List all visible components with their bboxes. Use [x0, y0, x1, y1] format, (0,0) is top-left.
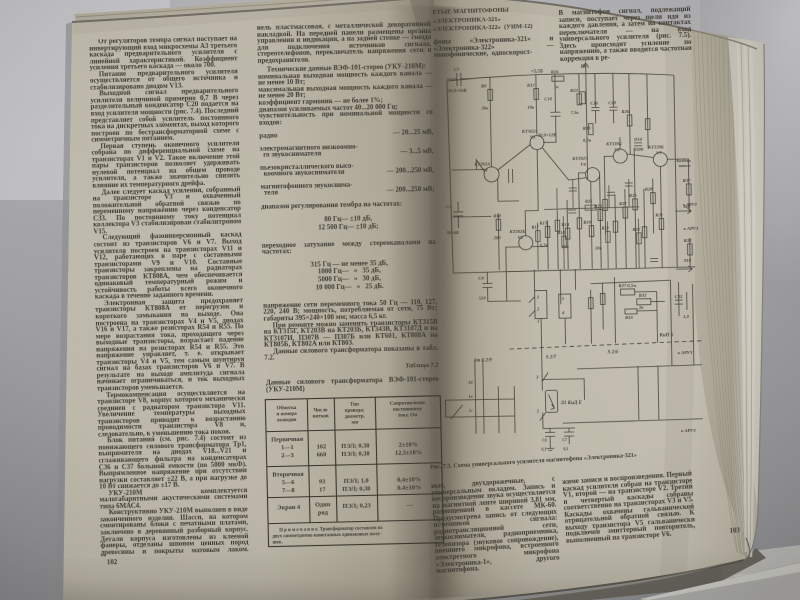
svg-text:С7: С7	[454, 67, 460, 72]
svg-text:2: 2	[536, 307, 540, 312]
svg-text:6,2к: 6,2к	[540, 242, 549, 247]
svg-text:С2: С2	[446, 204, 452, 209]
svg-text:V3: V3	[530, 135, 536, 140]
svg-text:7—8: 7—8	[282, 487, 295, 494]
svg-text:R9: R9	[481, 83, 487, 88]
svg-text:R26: R26	[621, 109, 629, 114]
svg-text:R25: R25	[629, 193, 637, 198]
svg-text:Число: Число	[313, 408, 328, 413]
svg-text:С19: С19	[608, 100, 616, 105]
svg-text:102: 102	[317, 443, 327, 450]
svg-text:ПЭЛ; 1,0: ПЭЛ; 1,0	[344, 477, 369, 485]
svg-text:5: 5	[562, 296, 565, 301]
svg-text:и номера: и номера	[276, 412, 297, 417]
svg-text:С6: С6	[542, 437, 547, 442]
svg-text:Сопротивление: Сопротивление	[390, 401, 426, 407]
svg-text:R16: R16	[551, 69, 559, 74]
svg-text:D10: D10	[633, 137, 643, 142]
svg-text:R20: R20	[594, 203, 602, 208]
svg-text:3300: 3300	[633, 147, 644, 152]
svg-text:к АРУЗ: к АРУЗ	[683, 226, 698, 231]
svg-text:R23: R23	[601, 225, 609, 230]
svg-text:3: 3	[535, 375, 539, 380]
svg-text:0,4±10%: 0,4±10%	[397, 476, 421, 484]
svg-text:0,1: 0,1	[563, 446, 568, 451]
svg-text:0,4±10%: 0,4±10%	[397, 484, 421, 492]
svg-text:V4: V4	[580, 162, 586, 167]
svg-text:93: 93	[319, 478, 325, 485]
svg-text:С7: С7	[562, 437, 568, 442]
svg-text:R32: R32	[639, 293, 647, 298]
svg-text:R17: R17	[531, 225, 539, 230]
svg-text:12,5±10%: 12,5±10%	[395, 449, 422, 457]
svg-text:В6: В6	[580, 65, 587, 70]
svg-text:R28: R28	[645, 187, 653, 192]
svg-text:R38: R38	[684, 238, 692, 243]
svg-text:Экран 4: Экран 4	[277, 504, 301, 512]
svg-text:4: 4	[561, 310, 565, 315]
svg-text:R33: R33	[625, 315, 633, 320]
svg-text:к АРУЗ: к АРУЗ	[678, 350, 693, 355]
svg-text:С22: С22	[675, 294, 683, 299]
svg-text:R19: R19	[583, 220, 591, 225]
svg-text:диаметр,: диаметр,	[345, 414, 366, 419]
svg-text:двух симметрично намотанных од: двух симметрично намотанных одинаковых п…	[272, 532, 382, 539]
svg-text:ПЭЛ; 0,38: ПЭЛ; 0,38	[341, 450, 369, 458]
svg-text:КТ339Б: КТ339Б	[647, 144, 664, 149]
svg-text:S 2/7: S 2/7	[546, 355, 557, 360]
svg-text:8,2к: 8,2к	[583, 138, 592, 143]
svg-text:провода;: провода;	[345, 408, 365, 413]
svg-text:R18: R18	[558, 230, 566, 235]
svg-text:ряд: ряд	[318, 509, 329, 516]
svg-text:шек.: шек.	[272, 540, 282, 545]
svg-text:R14: R14	[561, 222, 569, 227]
svg-text:R25: R25	[585, 199, 593, 204]
svg-text:3: 3	[536, 295, 540, 300]
svg-text:18к: 18к	[527, 105, 535, 110]
svg-text:КиП 6: КиП 6	[658, 333, 673, 338]
svg-text:1,0: 1,0	[683, 314, 690, 319]
svg-text:току, Ом: току, Ом	[398, 413, 418, 418]
svg-text:2к: 2к	[638, 305, 644, 310]
svg-text:Один: Один	[315, 501, 331, 508]
svg-text:С10: С10	[544, 96, 552, 101]
svg-text:V5: V5	[614, 147, 620, 152]
svg-text:к АРУЗ: к АРУЗ	[681, 428, 696, 433]
svg-text:30к: 30к	[480, 105, 489, 110]
svg-text:КТ302Б: КТ302Б	[509, 229, 526, 234]
svg-text:R22: R22	[570, 88, 578, 93]
svg-text:50×6Б: 50×6Б	[447, 230, 460, 235]
svg-text:V1: V1	[482, 167, 487, 172]
svg-text:Тип: Тип	[350, 403, 359, 408]
svg-text:витков: витков	[313, 414, 329, 419]
svg-text:ПЭЛ; 0,23: ПЭЛ; 0,23	[343, 502, 371, 510]
svg-text:20,0×12В: 20,0×12В	[537, 132, 556, 137]
svg-text:1: 1	[537, 319, 539, 324]
svg-text:мм: мм	[351, 421, 359, 426]
svg-text:R21: R21	[619, 201, 627, 206]
svg-text:R27 0,5м: R27 0,5м	[618, 283, 636, 288]
svg-text:R31: R31	[655, 212, 663, 217]
svg-text:Вторичная: Вторичная	[272, 471, 304, 479]
svg-text:910: 910	[684, 258, 692, 263]
svg-text:7,5к: 7,5к	[570, 110, 579, 115]
svg-text:2±10%: 2±10%	[399, 441, 418, 448]
svg-text:R10: R10	[493, 213, 501, 218]
svg-text:17: 17	[319, 486, 325, 493]
svg-text:R24: R24	[633, 227, 641, 232]
svg-text:0,1: 0,1	[541, 446, 546, 451]
svg-text:S 2/6: S 2/6	[608, 350, 619, 355]
svg-text:КТ339Б: КТ339Б	[605, 141, 622, 146]
svg-text:1к: 1к	[554, 84, 559, 89]
svg-text:—: —	[405, 501, 413, 508]
svg-text:КТ302А: КТ302А	[473, 161, 490, 166]
svg-text:200: 200	[493, 235, 502, 240]
svg-text:1б: 1б	[468, 380, 473, 385]
svg-text:записи: записи	[677, 163, 691, 168]
svg-text:Л1 КиД Е: Л1 КиД Е	[560, 401, 583, 406]
svg-text:С16: С16	[590, 100, 598, 105]
svg-text:R30: R30	[583, 126, 591, 131]
svg-text:+5,5Б: +5,5Б	[531, 69, 544, 74]
svg-text:1г: 1г	[469, 408, 473, 413]
svg-text:Обмотка: Обмотка	[277, 406, 297, 411]
svg-text:R37: R37	[683, 178, 691, 183]
svg-text:R13: R13	[527, 83, 535, 88]
svg-text:5—6: 5—6	[282, 479, 295, 486]
svg-text:660: 660	[317, 451, 327, 458]
svg-text:V7: V7	[656, 150, 662, 155]
svg-text:22к: 22к	[561, 244, 570, 249]
svg-text:18к: 18к	[595, 245, 603, 250]
svg-text:КТ302А: КТ302А	[571, 156, 588, 161]
svg-text:560: 560	[683, 204, 691, 209]
svg-text:1—1: 1—1	[281, 444, 294, 451]
svg-text:ПЭЛ; 0,38: ПЭЛ; 0,38	[342, 485, 370, 493]
svg-text:КТ302А: КТ302А	[521, 129, 538, 134]
svg-text:V2: V2	[518, 235, 524, 240]
svg-text:постоянному: постоянному	[393, 407, 423, 413]
svg-text:50,0×16В: 50,0×16В	[448, 88, 466, 93]
svg-text:ПЭЛ; 0,38: ПЭЛ; 0,38	[341, 442, 369, 450]
svg-text:1в: 1в	[468, 394, 472, 399]
svg-text:510: 510	[479, 295, 487, 300]
svg-text:2—3: 2—3	[281, 452, 294, 459]
svg-text:выводов: выводов	[277, 418, 297, 423]
svg-text:R15: R15	[539, 220, 547, 225]
svg-text:1т S 2/9: 1т S 2/9	[474, 358, 493, 363]
svg-text:5: 5	[537, 409, 540, 414]
svg-text:С4: С4	[478, 276, 484, 281]
svg-text:Первичная: Первичная	[271, 436, 304, 444]
